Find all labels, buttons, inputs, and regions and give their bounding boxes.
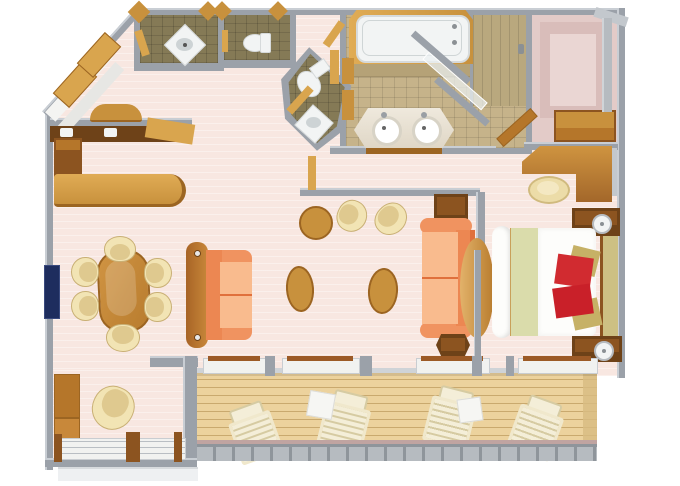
vanity-sink-right bbox=[412, 116, 442, 146]
door-mullion bbox=[472, 356, 482, 376]
dining-chair bbox=[106, 324, 140, 352]
vanity-sink-left bbox=[372, 116, 402, 146]
bar-sink bbox=[60, 128, 73, 137]
right-wall bbox=[617, 8, 625, 378]
dining-table-highlight bbox=[105, 259, 138, 316]
sink-drain bbox=[183, 43, 187, 47]
bar-counter bbox=[54, 174, 186, 207]
bath-bench bbox=[342, 90, 354, 120]
door-mullion bbox=[506, 356, 514, 376]
dining-chair bbox=[71, 291, 99, 321]
bar-column-top bbox=[56, 140, 80, 150]
door-threshold-wood bbox=[208, 356, 260, 361]
sink-drain bbox=[382, 126, 386, 130]
vanity-faucet bbox=[381, 112, 387, 118]
living-door-jamb bbox=[308, 156, 316, 190]
bath-door bbox=[330, 50, 339, 84]
tub-faucet bbox=[452, 24, 457, 29]
bath-bench bbox=[342, 58, 354, 84]
dining-chair bbox=[144, 258, 172, 288]
powder-sink-basin bbox=[306, 117, 321, 128]
tub-faucet bbox=[452, 40, 457, 45]
closet-carpet-center bbox=[550, 34, 596, 106]
alcove-door-post bbox=[174, 432, 182, 462]
lower-balcony-hint bbox=[58, 467, 198, 481]
sofa-back-screw bbox=[194, 334, 201, 341]
bar-sink bbox=[104, 128, 117, 137]
sofa-wood-back bbox=[186, 242, 208, 348]
alcove-door-threshold bbox=[56, 438, 186, 460]
deck-right-shade bbox=[583, 372, 597, 448]
wall-tv bbox=[44, 265, 60, 319]
floor-plan bbox=[0, 0, 680, 486]
shower-stall-floor bbox=[470, 12, 529, 106]
sink-drain bbox=[422, 126, 426, 130]
vanity-faucet bbox=[421, 112, 427, 118]
sofa-cushion-line bbox=[220, 294, 252, 296]
dining-chair bbox=[144, 292, 172, 322]
bed-bolster bbox=[492, 226, 512, 338]
closet-dresser-front bbox=[556, 128, 614, 140]
dining-chair bbox=[104, 236, 136, 262]
bathtub-inner-rim bbox=[362, 20, 462, 56]
sofa-cushion-line bbox=[422, 277, 458, 279]
alcove-cabinet bbox=[54, 374, 80, 418]
door-threshold-wood bbox=[523, 356, 591, 361]
deck-side-table bbox=[456, 396, 483, 423]
toilet-tank bbox=[260, 33, 271, 53]
end-table-top bbox=[441, 338, 465, 351]
pillow-red bbox=[552, 284, 594, 319]
deck-side-table bbox=[306, 390, 336, 420]
bed bbox=[492, 226, 604, 338]
shower-handle bbox=[518, 44, 524, 54]
door-mullion bbox=[265, 356, 275, 376]
closet-rod bbox=[602, 18, 612, 112]
door-threshold-wood bbox=[287, 356, 353, 361]
side-table-top bbox=[437, 197, 465, 215]
bistro-table bbox=[299, 206, 333, 240]
dining-chair bbox=[71, 257, 99, 287]
closet-dresser-top bbox=[556, 112, 614, 128]
door-mullion bbox=[360, 356, 372, 376]
sofa-back-screw bbox=[194, 250, 201, 257]
hall-console-table bbox=[90, 104, 142, 122]
deck-railing bbox=[197, 444, 597, 461]
sofa-left bbox=[186, 242, 252, 348]
alcove-door-post bbox=[54, 434, 62, 462]
desk-stool-cushion bbox=[537, 181, 559, 195]
alcove-door-post bbox=[126, 432, 140, 462]
toilet-room-door bbox=[222, 30, 228, 52]
vanity-ledge bbox=[366, 148, 442, 154]
